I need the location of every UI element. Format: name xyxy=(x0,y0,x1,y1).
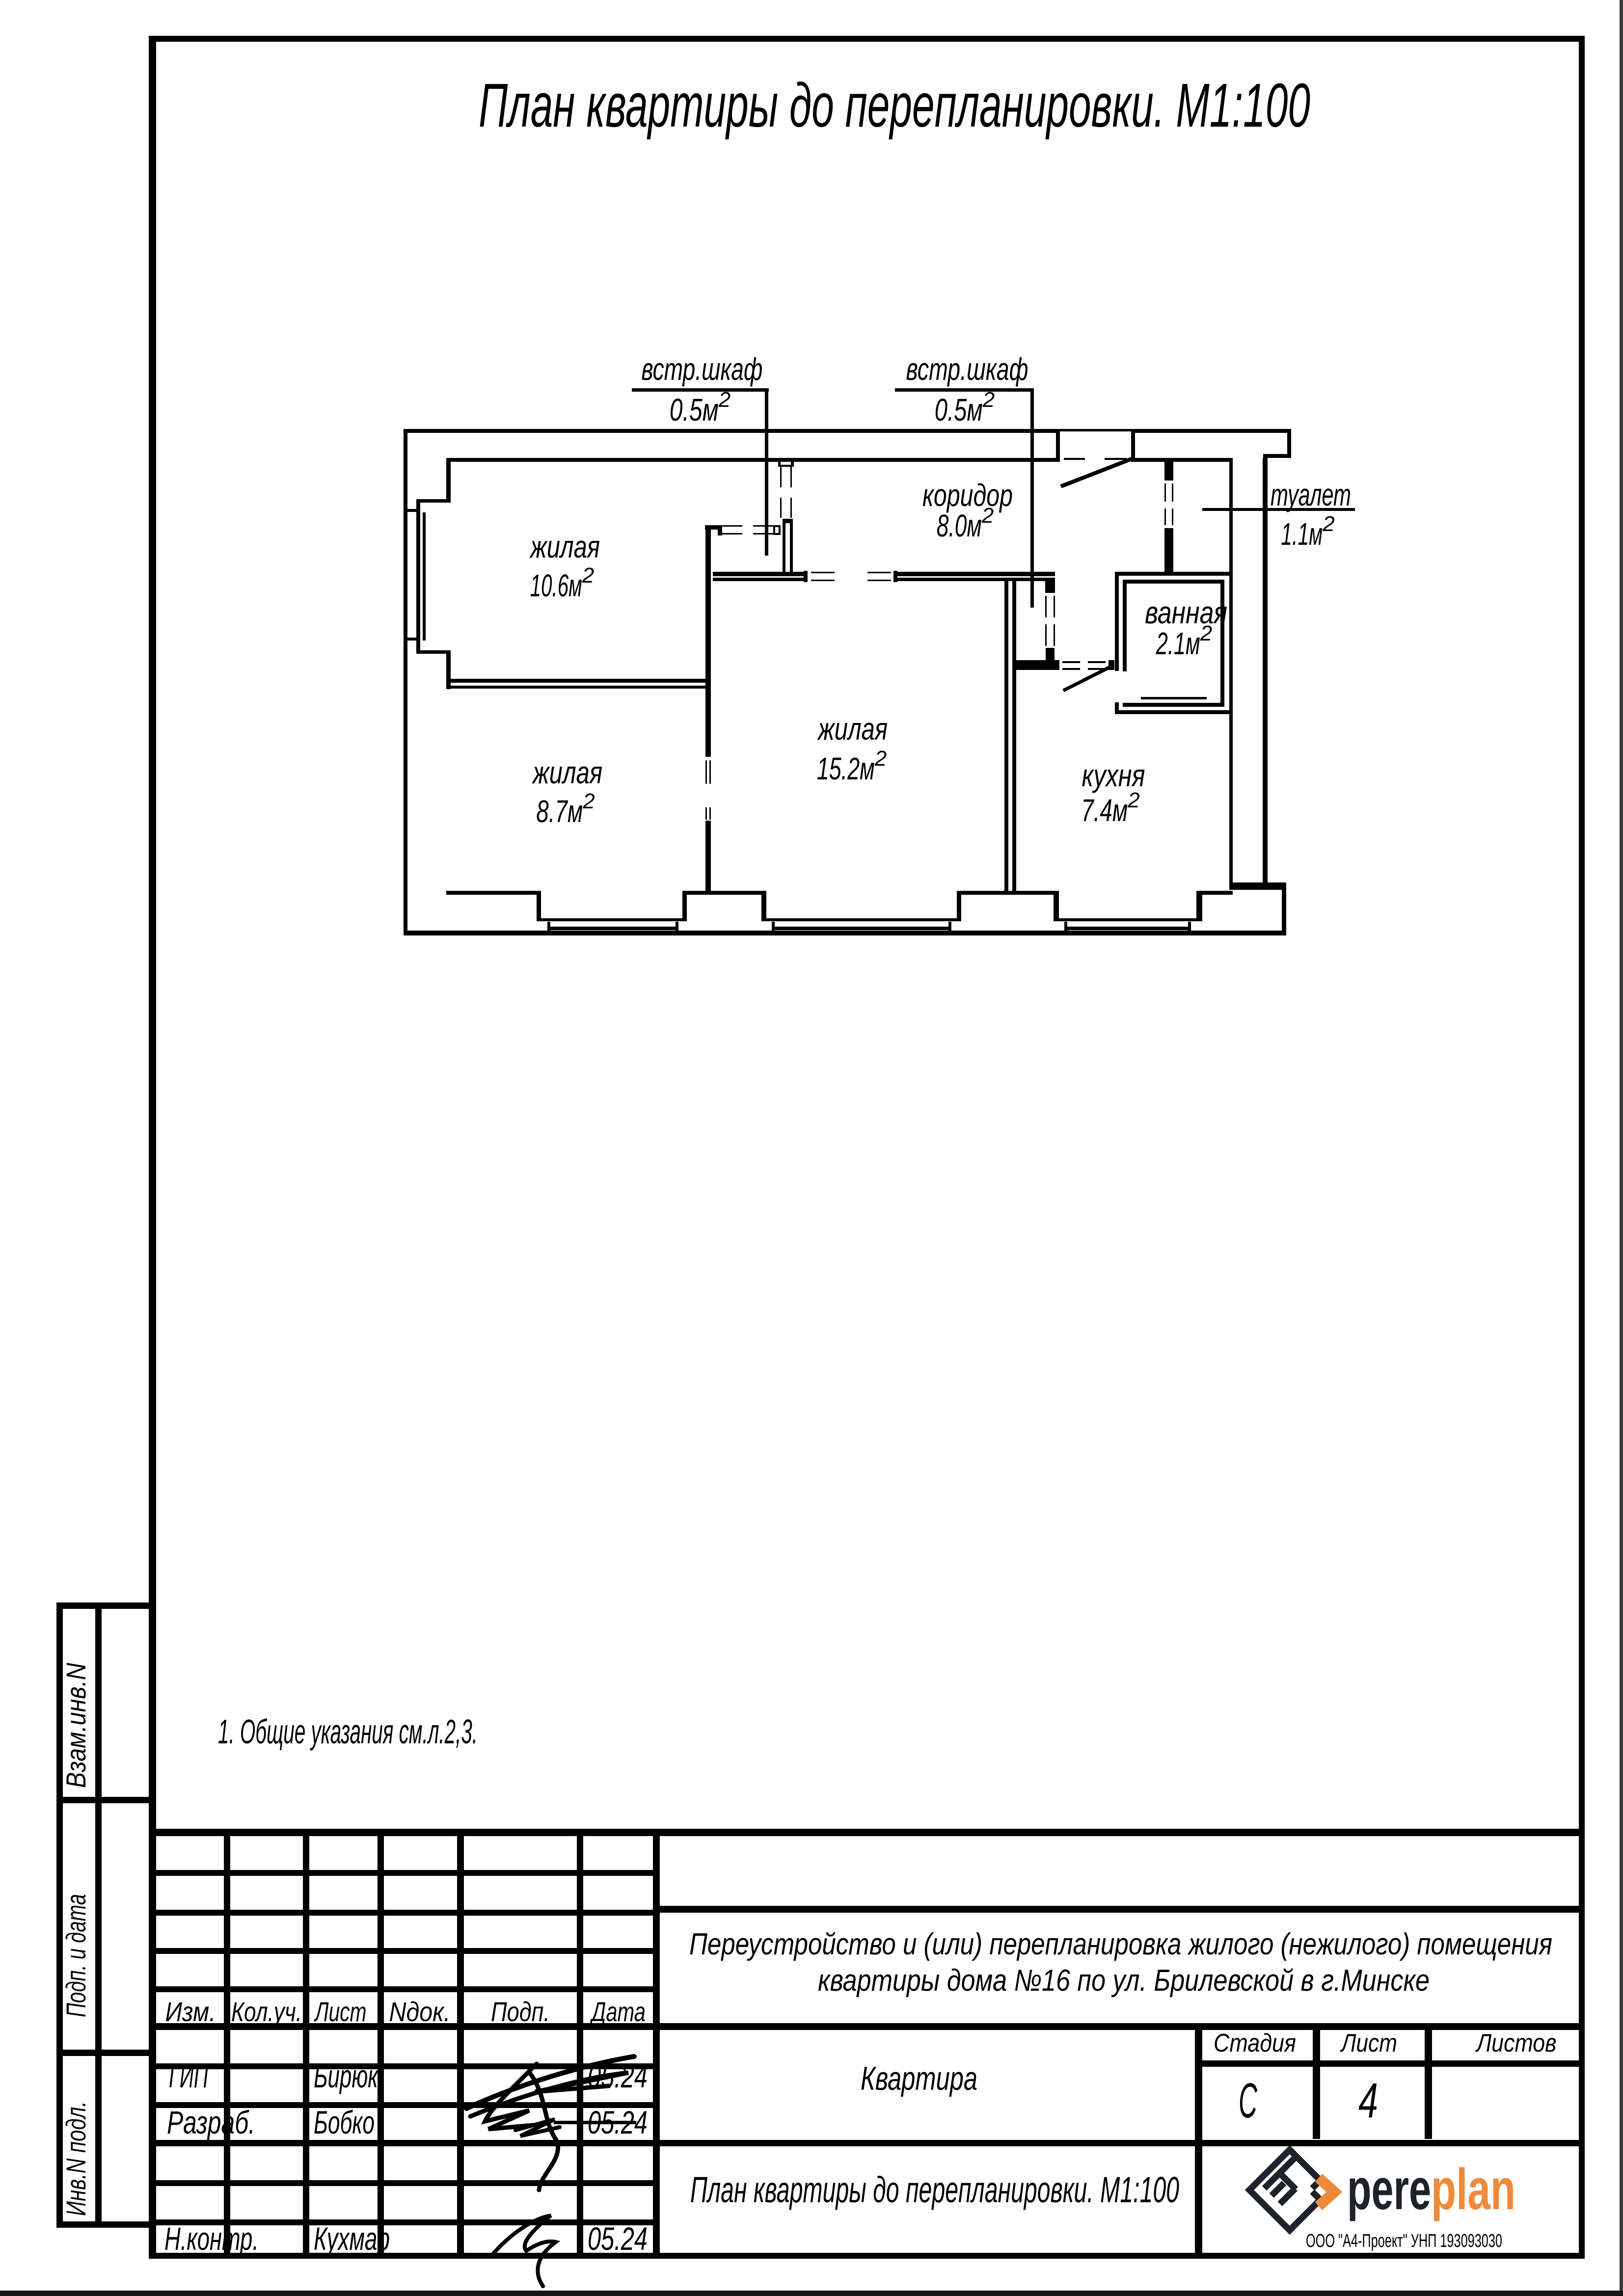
svg-text:Бобко: Бобко xyxy=(314,2104,375,2140)
svg-text:8.0м2: 8.0м2 xyxy=(937,504,994,543)
svg-text:Дата: Дата xyxy=(590,1996,646,2027)
svg-text:встр.шкаф: встр.шкаф xyxy=(642,351,763,387)
svg-text:жилая: жилая xyxy=(817,711,888,747)
svg-text:квартиры дома №16 по ул. Бриле: квартиры дома №16 по ул. Брилевской в г.… xyxy=(818,1964,1430,1998)
svg-text:Nдок.: Nдок. xyxy=(389,1996,451,2027)
svg-text:15.2м2: 15.2м2 xyxy=(817,747,887,786)
svg-text:8.7м2: 8.7м2 xyxy=(536,789,595,829)
svg-text:Изм.: Изм. xyxy=(165,1996,216,2027)
svg-text:Подп. и дата: Подп. и дата xyxy=(60,1894,91,2017)
svg-text:05.24: 05.24 xyxy=(588,2220,648,2257)
svg-text:Стадия: Стадия xyxy=(1214,2029,1296,2057)
svg-text:Разраб.: Разраб. xyxy=(167,2104,255,2140)
svg-text:Инв.N подл.: Инв.N подл. xyxy=(60,2101,91,2216)
svg-text:Кухмар: Кухмар xyxy=(314,2220,390,2257)
svg-text:жилая: жилая xyxy=(532,755,602,790)
svg-text:0.5м2: 0.5м2 xyxy=(935,388,995,427)
svg-text:Н.контр.: Н.контр. xyxy=(164,2220,259,2257)
svg-text:ГИП: ГИП xyxy=(169,2058,208,2094)
svg-text:ванная: ванная xyxy=(1145,595,1227,630)
svg-text:Взам.инв.N: Взам.инв.N xyxy=(60,1663,91,1788)
svg-text:План квартиры до перепланировк: План квартиры до перепланировки. М1:100 xyxy=(690,2169,1179,2210)
svg-text:Подп.: Подп. xyxy=(491,1996,550,2027)
svg-text:туалет: туалет xyxy=(1271,477,1351,512)
svg-text:С: С xyxy=(1239,2073,1257,2128)
svg-text:Кол.уч.: Кол.уч. xyxy=(231,1996,302,2027)
svg-text:4: 4 xyxy=(1358,2073,1378,2128)
svg-text:встр.шкаф: встр.шкаф xyxy=(906,351,1028,387)
svg-text:Квартира: Квартира xyxy=(861,2060,977,2097)
svg-text:1.1м2: 1.1м2 xyxy=(1281,512,1334,552)
svg-text:Бирюк: Бирюк xyxy=(314,2058,379,2094)
svg-text:Лист: Лист xyxy=(1340,2029,1397,2057)
svg-text:План квартиры до перепланировк: План квартиры до перепланировки. М1:100 xyxy=(479,71,1310,140)
svg-text:ООО "А4-Проект" УНП 193093030: ООО "А4-Проект" УНП 193093030 xyxy=(1306,2231,1502,2251)
svg-text:0.5м2: 0.5м2 xyxy=(670,388,730,427)
svg-text:жилая: жилая xyxy=(529,529,600,564)
svg-text:7.4м2: 7.4м2 xyxy=(1081,788,1139,828)
svg-text:2.1м2: 2.1м2 xyxy=(1156,621,1212,661)
svg-text:Переустройство и (или) перепла: Переустройство и (или) перепланировка жи… xyxy=(689,1927,1552,1961)
svg-text:10.6м2: 10.6м2 xyxy=(530,563,594,603)
svg-text:Лист: Лист xyxy=(314,1996,366,2027)
svg-text:pere: pere xyxy=(1347,2157,1431,2222)
svg-text:Листов: Листов xyxy=(1475,2029,1557,2057)
svg-text:1. Общие указания см.л.2,3.: 1. Общие указания см.л.2,3. xyxy=(218,1712,478,1751)
svg-text:plan: plan xyxy=(1431,2157,1515,2222)
